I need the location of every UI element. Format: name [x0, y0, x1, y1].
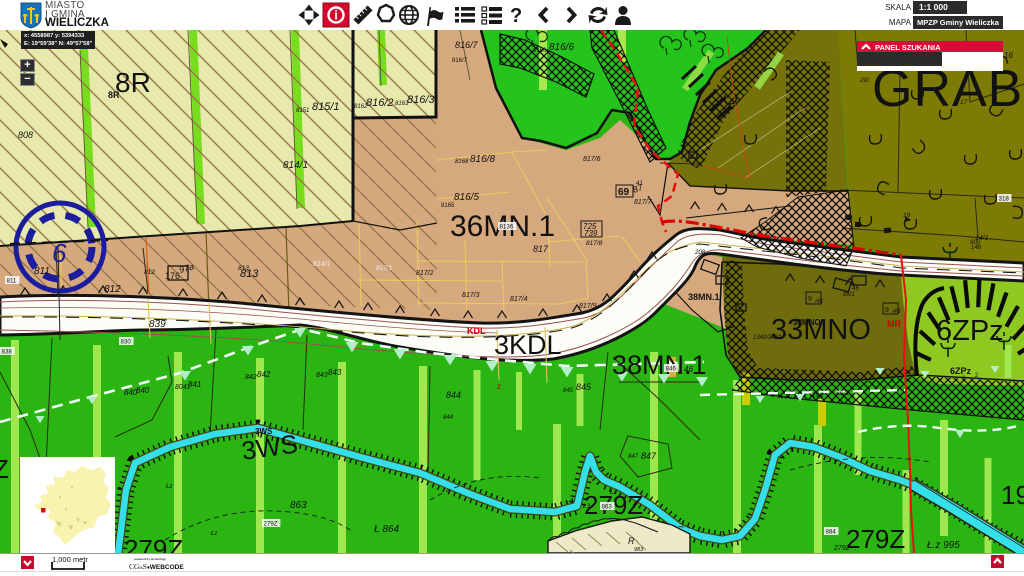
svg-text:842: 842 — [257, 370, 271, 379]
svg-text:846: 846 — [666, 366, 677, 373]
svg-text:844: 844 — [443, 415, 454, 421]
svg-text:i: i — [334, 8, 338, 23]
svg-text:845: 845 — [563, 388, 574, 394]
svg-text:842: 842 — [245, 374, 257, 381]
svg-text:845: 845 — [576, 382, 592, 392]
svg-text:8R: 8R — [115, 67, 151, 98]
svg-text:z: z — [497, 382, 501, 391]
svg-text:?: ? — [510, 5, 522, 27]
svg-text:6ZPz: 6ZPz — [936, 315, 1004, 347]
svg-text:811: 811 — [34, 266, 50, 277]
svg-text:816/7: 816/7 — [455, 40, 479, 50]
svg-text:46: 46 — [684, 365, 693, 374]
svg-text:3KDL: 3KDL — [494, 330, 562, 360]
svg-text:817/7: 817/7 — [634, 199, 653, 206]
svg-text:815/1: 815/1 — [312, 101, 340, 113]
svg-text:863: 863 — [602, 504, 613, 511]
svg-text:Łz: Łz — [166, 484, 172, 490]
svg-text:816/7: 816/7 — [452, 58, 468, 64]
svg-text:817/4: 817/4 — [510, 296, 528, 303]
svg-text:20/: 20/ — [859, 77, 870, 84]
svg-text:279Z: 279Z — [124, 534, 183, 553]
svg-text:8163: 8163 — [395, 101, 409, 107]
svg-text:Ł.z 995: Ł.z 995 — [927, 540, 960, 551]
svg-text:816/2: 816/2 — [366, 97, 394, 109]
svg-text:16/2: 16/2 — [812, 393, 824, 399]
svg-text:817: 817 — [533, 244, 549, 254]
svg-text:839: 839 — [149, 319, 166, 330]
svg-text:Łz: Łz — [610, 489, 618, 496]
svg-text:33MNO: 33MNO — [771, 314, 871, 346]
svg-text:813: 813 — [240, 268, 259, 280]
svg-text:19: 19 — [1001, 480, 1024, 510]
svg-text:3WS: 3WS — [255, 427, 273, 436]
svg-text:KDL: KDL — [467, 326, 486, 336]
svg-text:8136: 8136 — [500, 224, 514, 231]
svg-text:8162: 8162 — [354, 104, 368, 110]
svg-text:16: 16 — [1004, 51, 1013, 60]
svg-text:41: 41 — [636, 181, 643, 187]
svg-text:739: 739 — [584, 229, 598, 238]
svg-text:884: 884 — [826, 529, 837, 536]
svg-text:Ł3: Ł3 — [583, 503, 591, 510]
svg-text:R: R — [628, 536, 635, 546]
svg-text:8166: 8166 — [533, 48, 547, 54]
svg-text:318: 318 — [999, 196, 1010, 203]
svg-text:40/1: 40/1 — [770, 335, 782, 341]
svg-text:6ZPz: 6ZPz — [950, 366, 972, 376]
svg-text:8165: 8165 — [441, 203, 455, 209]
svg-text:Ł 864: Ł 864 — [374, 524, 399, 535]
svg-text:817/6: 817/6 — [583, 156, 601, 163]
svg-text:812: 812 — [104, 284, 121, 295]
svg-text:208: 208 — [694, 250, 706, 256]
svg-text:69: 69 — [618, 187, 630, 198]
svg-text:817/9: 817/9 — [579, 303, 597, 310]
svg-text:279Z: 279Z — [846, 524, 905, 553]
svg-text:840: 840 — [136, 386, 150, 395]
svg-text:838: 838 — [2, 349, 13, 356]
svg-text:279Z: 279Z — [264, 521, 278, 528]
svg-text:9: 9 — [885, 307, 889, 314]
svg-text:816/3: 816/3 — [407, 94, 435, 106]
svg-text:Z: Z — [0, 454, 9, 484]
svg-text:86/1: 86/1 — [843, 292, 855, 298]
svg-text:816/8: 816/8 — [470, 154, 495, 165]
svg-text:863: 863 — [290, 500, 307, 511]
svg-text:812: 812 — [144, 269, 155, 276]
svg-text:8R: 8R — [108, 90, 120, 100]
svg-text:/41: /41 — [814, 299, 823, 305]
svg-text:816/5: 816/5 — [454, 192, 479, 203]
svg-text:/43: /43 — [891, 309, 901, 315]
svg-text:811: 811 — [7, 278, 17, 285]
svg-text:817/1: 817/1 — [376, 265, 393, 272]
svg-text:817/8: 817/8 — [586, 240, 603, 247]
svg-text:817/3: 817/3 — [462, 292, 480, 299]
svg-text:816/6: 816/6 — [549, 42, 574, 53]
svg-text:8168: 8168 — [455, 159, 469, 165]
svg-text:8871: 8871 — [836, 391, 849, 397]
svg-text:38MN.1: 38MN.1 — [688, 292, 720, 302]
svg-text:Łz: Łz — [211, 531, 217, 537]
svg-text:17: 17 — [960, 99, 968, 106]
svg-text:830: 830 — [121, 339, 132, 346]
svg-text:814/1: 814/1 — [313, 261, 331, 268]
svg-text:843: 843 — [316, 372, 328, 379]
svg-text:279Z: 279Z — [833, 545, 851, 552]
svg-text:814/1: 814/1 — [283, 160, 308, 171]
svg-text:808: 808 — [18, 130, 33, 140]
svg-text:9: 9 — [808, 296, 812, 303]
svg-text:MR: MR — [887, 319, 901, 329]
svg-text:844: 844 — [446, 390, 461, 400]
svg-text:8041: 8041 — [175, 384, 191, 391]
svg-text:817/2: 817/2 — [416, 270, 434, 277]
svg-text:847: 847 — [641, 451, 657, 461]
svg-text:843: 843 — [328, 368, 342, 377]
svg-text:33MNO: 33MNO — [793, 318, 821, 327]
svg-text:176: 176 — [165, 271, 180, 281]
svg-text:847: 847 — [628, 454, 639, 460]
svg-text:8151: 8151 — [296, 108, 309, 114]
svg-text:900: 900 — [970, 240, 981, 246]
